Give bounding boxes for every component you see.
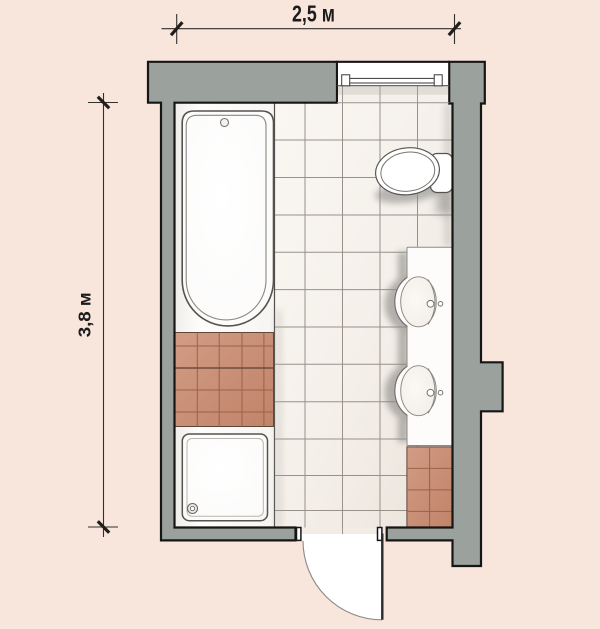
svg-text:3,8 м: 3,8 м xyxy=(75,292,95,337)
svg-text:2,5 м: 2,5 м xyxy=(292,1,335,27)
